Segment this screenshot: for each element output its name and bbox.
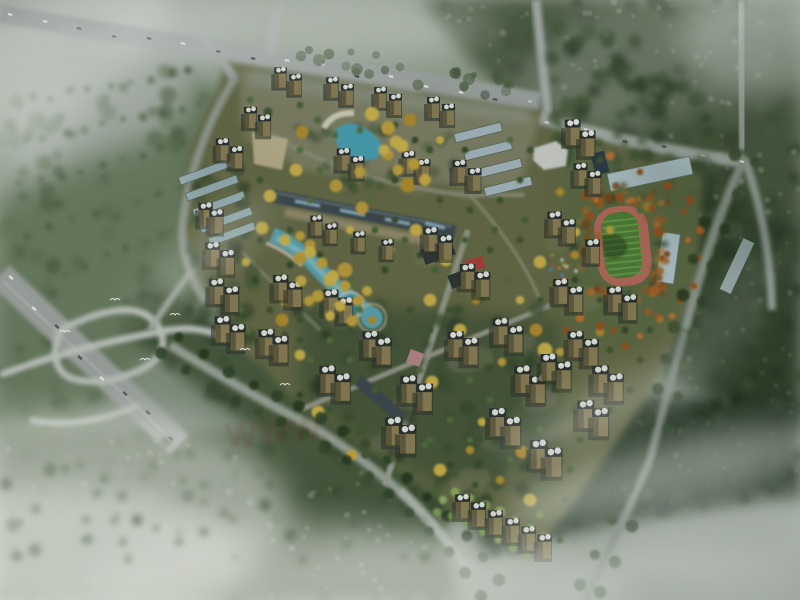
- svg-text:WWW.: WWW.: [224, 410, 330, 455]
